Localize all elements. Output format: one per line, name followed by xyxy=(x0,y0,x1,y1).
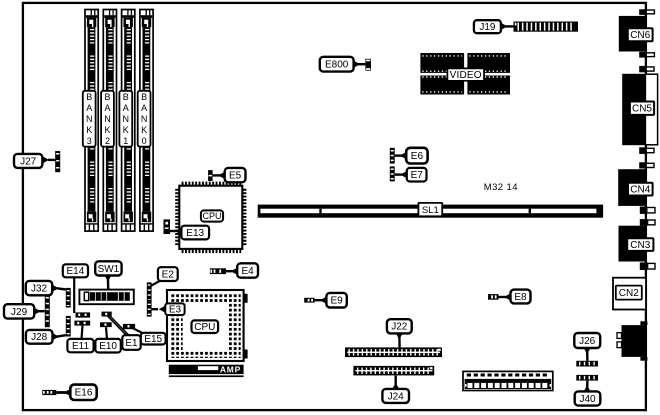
svg-text:E6: E6 xyxy=(411,151,424,162)
svg-text:E16: E16 xyxy=(75,388,93,399)
svg-text:AMP: AMP xyxy=(220,365,241,375)
svg-text:E1: E1 xyxy=(125,338,138,349)
svg-text:J19: J19 xyxy=(479,22,496,33)
svg-text:BANK1: BANK1 xyxy=(123,92,130,146)
svg-text:BANK0: BANK0 xyxy=(141,92,148,146)
svg-text:E800: E800 xyxy=(325,60,349,71)
svg-text:CN4: CN4 xyxy=(630,185,650,196)
svg-text:CN6: CN6 xyxy=(630,30,650,41)
svg-text:J29: J29 xyxy=(11,307,28,318)
svg-text:CN2: CN2 xyxy=(619,288,639,299)
svg-text:CPU: CPU xyxy=(194,322,215,333)
svg-text:E15: E15 xyxy=(144,334,162,345)
svg-text:BANK2: BANK2 xyxy=(104,92,111,146)
svg-text:J27: J27 xyxy=(20,156,37,167)
svg-text:E7: E7 xyxy=(411,170,424,181)
svg-text:SL1: SL1 xyxy=(422,205,439,216)
svg-text:E3: E3 xyxy=(169,305,182,316)
svg-text:M32 14: M32 14 xyxy=(484,182,518,193)
svg-text:CN5: CN5 xyxy=(632,104,652,115)
svg-text:E5: E5 xyxy=(229,171,242,182)
svg-text:E11: E11 xyxy=(72,341,89,352)
svg-text:J26: J26 xyxy=(579,336,596,347)
svg-text:E8: E8 xyxy=(514,292,527,303)
svg-text:E2: E2 xyxy=(162,270,175,281)
svg-text:E14: E14 xyxy=(67,266,85,277)
svg-text:CPU: CPU xyxy=(202,211,221,221)
svg-text:VIDEO: VIDEO xyxy=(450,70,482,81)
svg-text:SW1: SW1 xyxy=(98,264,120,275)
svg-text:J24: J24 xyxy=(388,391,405,402)
svg-text:J32: J32 xyxy=(31,284,48,295)
svg-text:J22: J22 xyxy=(391,322,408,333)
svg-text:BANK3: BANK3 xyxy=(86,92,93,146)
svg-text:E13: E13 xyxy=(186,228,204,239)
svg-text:J40: J40 xyxy=(579,394,596,405)
svg-text:E9: E9 xyxy=(330,296,343,307)
svg-text:CN3: CN3 xyxy=(630,240,650,251)
svg-text:J28: J28 xyxy=(31,332,48,343)
svg-text:E4: E4 xyxy=(241,266,254,277)
svg-text:E10: E10 xyxy=(99,341,117,352)
